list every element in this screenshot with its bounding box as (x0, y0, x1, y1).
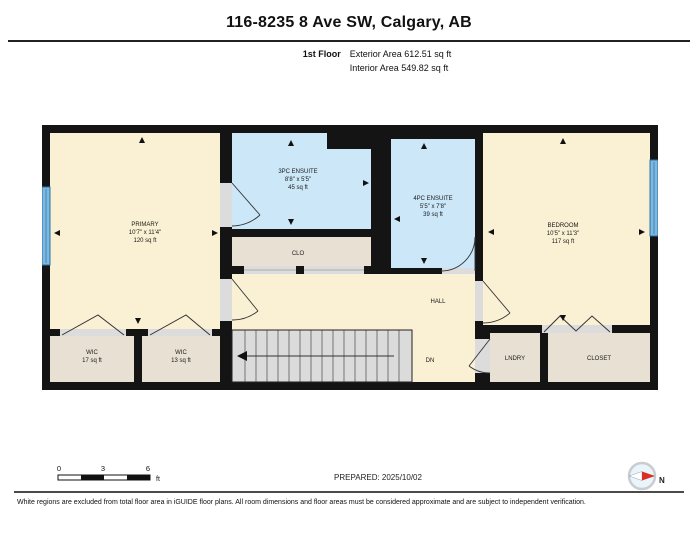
floor-plan-page: 116-8235 8 Ave SW, Calgary, AB 1st Floor… (0, 0, 698, 540)
room-label-clo: CLO (292, 251, 305, 257)
room-wic-2: WIC 13 sq ft (142, 336, 220, 382)
room-wic-1: WIC 17 sq ft (50, 336, 134, 382)
room-area-4pc: 39 sq ft (423, 212, 443, 218)
room-label-lndry: LNDRY (505, 356, 525, 362)
room-clo: CLO (232, 237, 371, 266)
scale-tick-6: 6 (146, 464, 150, 473)
floor-plan-drawing: PRIMARY 10'7" x 11'4" 120 sq ft 3PC ENSU… (42, 125, 658, 390)
room-4pc-ensuite: 4PC ENSUITE 5'5" x 7'8" 39 sq ft (391, 139, 475, 268)
clo-wall-openings (244, 266, 364, 274)
floor-plan-svg: PRIMARY 10'7" x 11'4" 120 sq ft 3PC ENSU… (42, 125, 658, 390)
interior-area: Interior Area 549.82 sq ft (350, 61, 452, 75)
disclaimer-text: White regions are excluded from total fl… (17, 499, 688, 506)
room-area-bedroom: 117 sq ft (552, 239, 575, 245)
exterior-area: Exterior Area 612.51 sq ft (350, 47, 452, 61)
wall-notch (327, 133, 371, 149)
room-label-hall: HALL (430, 299, 446, 305)
room-label-closet: CLOSET (587, 356, 611, 362)
room-3pc-ensuite: 3PC ENSUITE 8'8" x 5'5" 45 sq ft (232, 133, 371, 229)
floor-summary: 1st Floor Exterior Area 612.51 sq ft Int… (28, 47, 698, 75)
room-area-primary: 120 sq ft (133, 238, 156, 244)
room-primary: PRIMARY 10'7" x 11'4" 120 sq ft (50, 133, 220, 329)
room-label-3pc: 3PC ENSUITE (278, 169, 317, 175)
room-area-3pc: 45 sq ft (288, 185, 308, 191)
stairs-dn-label: DN (426, 358, 435, 364)
room-label-4pc: 4PC ENSUITE (413, 196, 452, 202)
room-label-wic2: WIC (175, 350, 187, 356)
room-laundry: LNDRY (490, 333, 540, 382)
room-area-wic1: 17 sq ft (82, 358, 102, 364)
scale-tick-3: 3 (101, 464, 105, 473)
room-dims-primary: 10'7" x 11'4" (129, 230, 161, 236)
page-title: 116-8235 8 Ave SW, Calgary, AB (0, 14, 698, 32)
room-label-primary: PRIMARY (131, 222, 158, 228)
room-label-wic1: WIC (86, 350, 98, 356)
scale-tick-0: 0 (57, 464, 61, 473)
area-summary: Exterior Area 612.51 sq ft Interior Area… (350, 47, 452, 75)
title-divider (8, 40, 690, 42)
room-dims-3pc: 8'8" x 5'5" (285, 177, 311, 183)
room-bedroom: BEDROOM 10'5" x 11'3" 117 sq ft (483, 133, 650, 325)
room-dims-4pc: 5'5" x 7'8" (420, 204, 446, 210)
room-label-bedroom: BEDROOM (547, 223, 578, 229)
prepared-date: PREPARED: 2025/10/02 (29, 473, 698, 482)
room-closet: CLOSET (548, 333, 650, 382)
floor-label: 1st Floor (303, 47, 341, 75)
room-dims-bedroom: 10'5" x 11'3" (547, 231, 579, 237)
footer-divider (14, 491, 684, 493)
compass-north-label: N (659, 476, 665, 485)
room-area-wic2: 13 sq ft (171, 358, 191, 364)
stairs (232, 330, 412, 382)
